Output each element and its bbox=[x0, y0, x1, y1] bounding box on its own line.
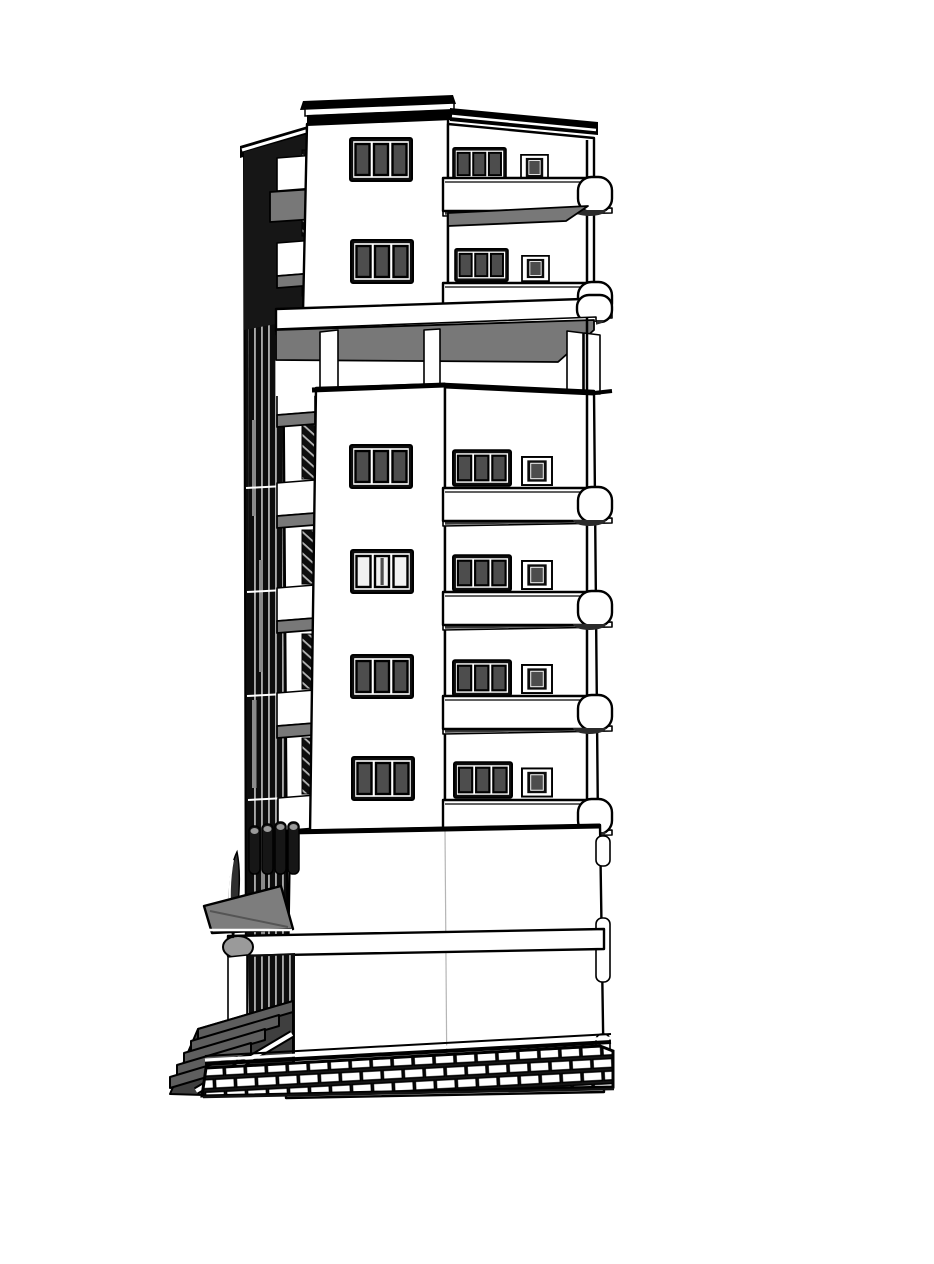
small-side-window bbox=[522, 457, 552, 485]
balcony-band bbox=[443, 591, 612, 630]
balcony-box bbox=[277, 480, 315, 528]
small-side-window bbox=[522, 768, 552, 796]
front-window bbox=[352, 757, 414, 800]
side-window bbox=[454, 762, 512, 797]
building-illustration: Monochrome 3D architectural model of a m… bbox=[0, 0, 934, 1264]
parapet-lip bbox=[594, 391, 612, 393]
balcony-box bbox=[277, 585, 315, 633]
side-window bbox=[453, 660, 511, 695]
balcony-box bbox=[277, 690, 315, 738]
front-window bbox=[350, 138, 412, 181]
front-window bbox=[351, 550, 413, 593]
terrace-column bbox=[567, 331, 583, 392]
main-tower bbox=[310, 318, 612, 838]
recessed-terrace bbox=[276, 295, 612, 396]
terrace-column bbox=[424, 329, 440, 388]
front-window bbox=[351, 240, 413, 283]
side-window bbox=[453, 148, 506, 180]
porch-column-capital bbox=[223, 936, 253, 958]
edge-bracket bbox=[596, 836, 610, 866]
balcony-band bbox=[443, 695, 612, 734]
front-window bbox=[350, 445, 412, 488]
front-window bbox=[351, 655, 413, 698]
balcony-band bbox=[443, 487, 612, 526]
side-window bbox=[453, 450, 511, 485]
side-window bbox=[455, 249, 508, 281]
small-side-window bbox=[522, 665, 552, 693]
canvas: Monochrome 3D architectural model of a m… bbox=[0, 0, 934, 1264]
side-window bbox=[453, 555, 511, 590]
small-side-window bbox=[521, 155, 548, 180]
terrace-column bbox=[320, 330, 338, 390]
penthouse-block bbox=[300, 95, 612, 321]
small-side-window bbox=[522, 561, 552, 589]
small-side-window bbox=[522, 256, 549, 281]
